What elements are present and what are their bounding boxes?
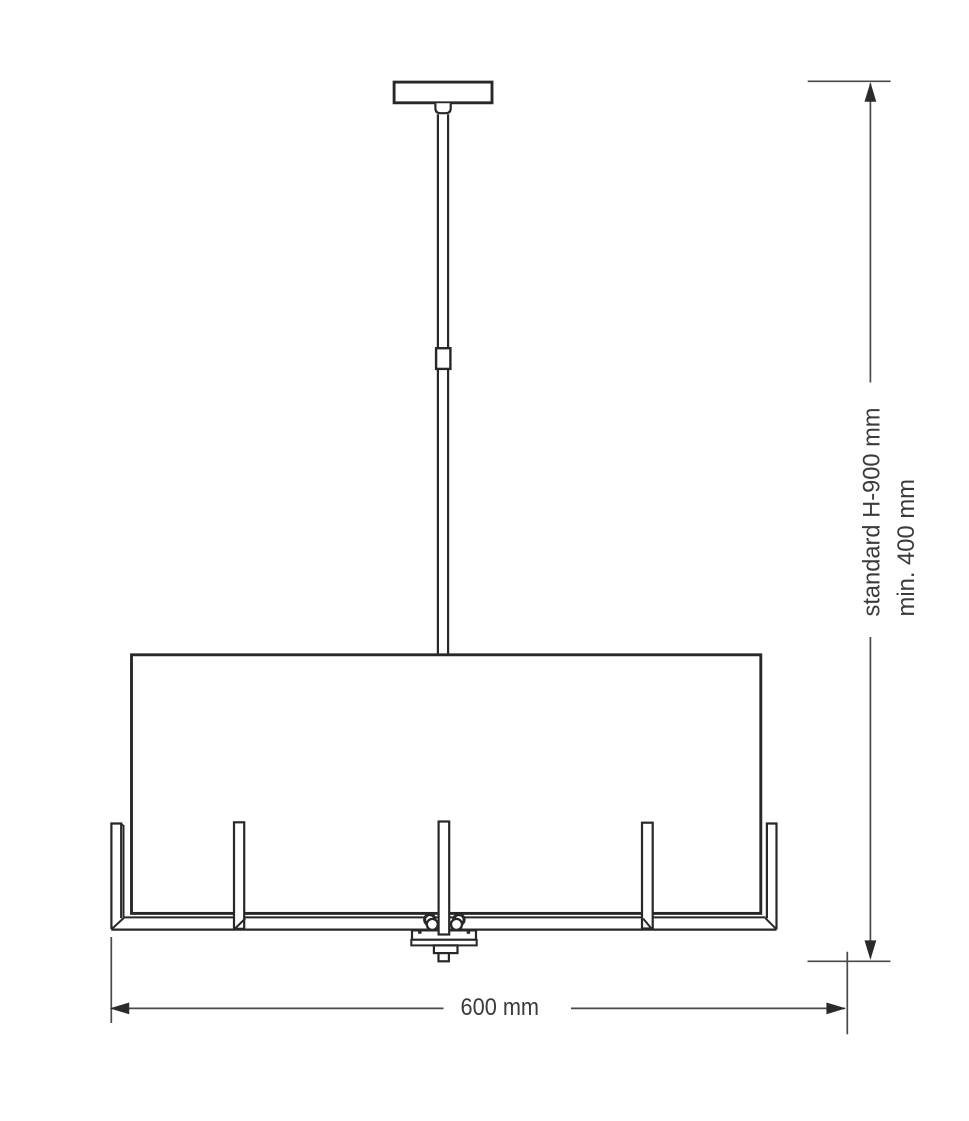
svg-text:standard H-900 mm: standard H-900 mm — [859, 408, 885, 617]
svg-text:min. 400 mm: min. 400 mm — [894, 479, 920, 617]
svg-text:600 mm: 600 mm — [461, 995, 540, 1021]
